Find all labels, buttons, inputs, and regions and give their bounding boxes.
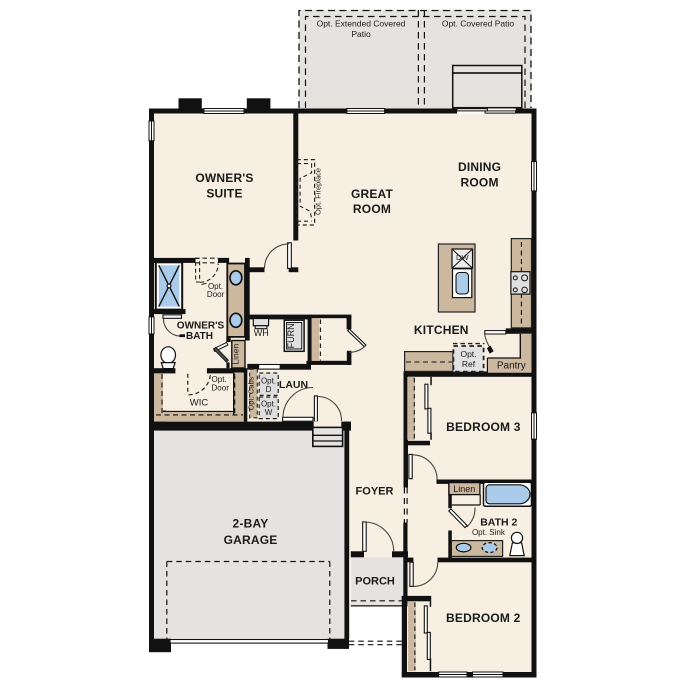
svg-text:LAUN: LAUN [279,379,308,391]
svg-text:BATH 2: BATH 2 [480,517,517,529]
svg-text:Patio: Patio [351,29,371,39]
svg-text:BEDROOM 3: BEDROOM 3 [446,420,521,434]
svg-text:KITCHEN: KITCHEN [414,323,469,337]
svg-text:FURN: FURN [286,323,296,348]
svg-text:Ref: Ref [462,359,476,369]
svg-text:W: W [265,408,273,417]
svg-text:BATH: BATH [186,331,213,342]
svg-text:Linen: Linen [231,344,241,365]
svg-text:WH: WH [254,328,269,338]
svg-text:Door: Door [212,384,230,393]
svg-text:Door: Door [207,290,225,299]
svg-text:D: D [266,385,272,394]
svg-text:Opt. Sink: Opt. Sink [472,528,506,537]
svg-text:2-BAY: 2-BAY [233,516,269,530]
svg-text:SUITE: SUITE [206,186,242,200]
svg-text:Opt. Cabs: Opt. Cabs [247,376,256,410]
svg-text:Opt.: Opt. [212,375,227,384]
svg-text:Opt.: Opt. [460,349,476,359]
svg-text:OWNER'S: OWNER'S [195,171,253,185]
svg-text:DINING: DINING [458,160,501,174]
svg-text:WIC: WIC [190,397,209,408]
svg-text:Opt. Fireplace: Opt. Fireplace [314,168,323,215]
svg-text:Opt.: Opt. [261,399,276,408]
svg-text:BEDROOM 2: BEDROOM 2 [446,611,521,625]
svg-text:Linen: Linen [453,484,475,494]
svg-text:Opt. Covered Patio: Opt. Covered Patio [442,19,515,29]
svg-text:ROOM: ROOM [461,175,499,189]
svg-text:OWNER'S: OWNER'S [177,320,225,331]
svg-text:Opt.: Opt. [261,376,276,385]
svg-text:ROOM: ROOM [353,202,391,216]
svg-text:Pantry: Pantry [497,360,526,371]
svg-text:PORCH: PORCH [355,576,395,588]
svg-text:Opt. Extended Covered: Opt. Extended Covered [317,19,406,29]
svg-text:GREAT: GREAT [351,187,394,201]
svg-text:GARAGE: GARAGE [224,533,278,547]
svg-text:FOYER: FOYER [356,486,394,498]
svg-text:DW: DW [456,253,469,262]
